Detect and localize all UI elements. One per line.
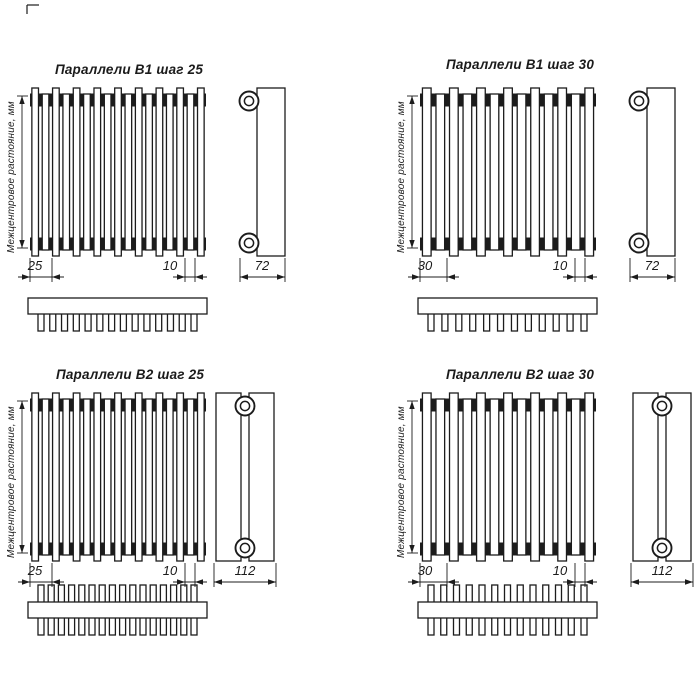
top-view: [418, 585, 597, 635]
dim-step: 25: [13, 258, 57, 273]
diagram-title: Параллели В1 шаг 25: [19, 62, 239, 77]
top-view: [28, 585, 207, 635]
diagram-group-1: [407, 88, 675, 331]
diagram-group-0: [17, 88, 285, 331]
top-view: [28, 298, 207, 331]
top-view: [418, 298, 597, 331]
corner-mark: [27, 5, 39, 14]
diagram-title: Параллели В2 шаг 30: [410, 367, 630, 382]
front-view: [31, 88, 206, 256]
dim-depth: 72: [240, 258, 284, 273]
axis-label: Межцентровое растояние, мм: [396, 101, 407, 253]
axis-label: Межцентровое растояние, мм: [396, 406, 407, 558]
dim-depth: 112: [223, 563, 267, 578]
dim-tube-width: 10: [148, 258, 192, 273]
dim-step: 30: [403, 258, 447, 273]
side-view: [630, 88, 676, 256]
dim-depth: 72: [630, 258, 674, 273]
side-view: [633, 393, 691, 561]
dim-tube-width: 10: [538, 258, 582, 273]
dim-step: 25: [13, 563, 57, 578]
axis-label: Межцентровое растояние, мм: [6, 406, 17, 558]
technical-drawing-sheet: Параллели В1 шаг 25 Межцентровое растоян…: [0, 0, 700, 700]
side-view: [240, 88, 286, 256]
side-view: [216, 393, 274, 561]
axis-label: Межцентровое растояние, мм: [6, 101, 17, 253]
dim-step: 30: [403, 563, 447, 578]
diagram-group-2: [17, 393, 276, 635]
dim-tube-width: 10: [148, 563, 192, 578]
dimension-lines: [407, 96, 675, 282]
front-view: [421, 393, 596, 561]
front-view: [31, 393, 206, 561]
drawing-canvas: [0, 0, 700, 700]
front-view: [421, 88, 596, 256]
diagram-group-3: [407, 393, 693, 635]
dim-tube-width: 10: [538, 563, 582, 578]
dim-depth: 112: [640, 563, 684, 578]
diagram-title: Параллели В2 шаг 25: [20, 367, 240, 382]
diagram-title: Параллели В1 шаг 30: [410, 57, 630, 72]
